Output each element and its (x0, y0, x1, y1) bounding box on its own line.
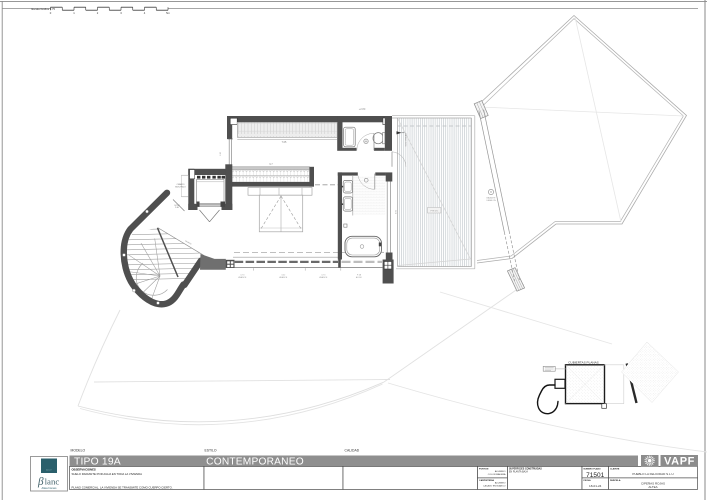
svg-text:ALUMINIO: ALUMINIO (495, 470, 506, 473)
svg-text:LACADO EN BLANCO: LACADO EN BLANCO (483, 485, 506, 488)
svg-text:71501: 71501 (586, 472, 604, 479)
svg-text:OBSERVACIONES: OBSERVACIONES (72, 468, 96, 472)
svg-text:AVANCE: AVANCE (319, 276, 328, 279)
svg-text:FECHA: FECHA (584, 479, 592, 482)
svg-text:ELECTRICO: ELECTRICO (175, 186, 186, 188)
svg-text:2.60: 2.60 (175, 207, 179, 209)
svg-text:SUELO RADIANTE POR AGUA EN TOD: SUELO RADIANTE POR AGUA EN TODA LA VIVIE… (72, 472, 143, 476)
svg-text:Altea homes: Altea homes (42, 486, 58, 490)
svg-text:EN PLANTA BAJA: EN PLANTA BAJA (509, 471, 528, 474)
svg-text:PUEBLO LA FELICIDAD S.L.U: PUEBLO LA FELICIDAD S.L.U (632, 472, 673, 476)
svg-text:MODELO: MODELO (71, 448, 86, 452)
svg-text:PTE 2%: PTE 2% (431, 211, 439, 213)
svg-text:Azure: Azure (45, 469, 52, 472)
svg-text:18-01-24: 18-01-24 (589, 484, 602, 488)
svg-text:+2.80: +2.80 (359, 107, 366, 111)
svg-text:AVANCE: AVANCE (238, 276, 247, 279)
svg-text:SALIDA HUMOS: SALIDA HUMOS (404, 133, 407, 147)
svg-text:TIPO 19A: TIPO 19A (74, 457, 121, 468)
svg-text:PARCELA: PARCELA (610, 479, 621, 482)
svg-text:VAPF: VAPF (664, 456, 695, 468)
svg-text:CALIDAD: CALIDAD (345, 448, 360, 452)
svg-text:CONTEMPORANEO: CONTEMPORANEO (206, 456, 304, 467)
svg-text:PLANO COMERCIAL. LA VIVIENDA S: PLANO COMERCIAL. LA VIVIENDA SE TRANSMIT… (72, 485, 173, 489)
svg-text:CLIENTE: CLIENTE (610, 468, 620, 470)
svg-text:CANALON: CANALON (486, 199, 496, 202)
svg-text:NUMERO PLANO: NUMERO PLANO (584, 467, 601, 470)
svg-text:COLOR MADERA: COLOR MADERA (488, 473, 506, 476)
svg-text:ALUMINIO: ALUMINIO (495, 482, 506, 485)
svg-text:PORTON: PORTON (479, 468, 489, 470)
svg-text:lanc: lanc (45, 476, 60, 486)
svg-text:SUPERFICIES CONSTRUIDAS: SUPERFICIES CONSTRUIDAS (509, 468, 542, 471)
svg-text:ALUM.: ALUM. (356, 276, 363, 279)
svg-text:CUBIERTAS PLANAS: CUBIERTAS PLANAS (568, 361, 599, 365)
svg-text:AVANCE: AVANCE (279, 276, 288, 279)
svg-text:ALTEA: ALTEA (648, 485, 657, 489)
svg-text:ESTILO: ESTILO (205, 448, 217, 452)
svg-text:CARPINTERIA: CARPINTERIA (479, 479, 494, 482)
svg-text:7.05: 7.05 (282, 141, 287, 144)
